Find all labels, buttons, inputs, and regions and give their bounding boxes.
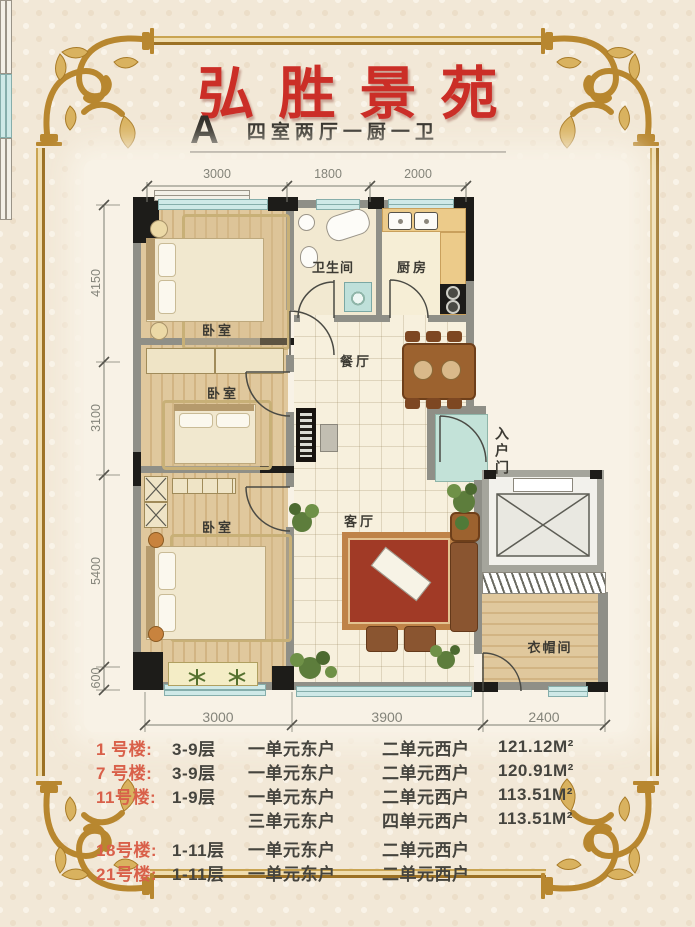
room-label-bedroom-middle: 卧室 <box>173 383 273 402</box>
dim-top-1: 3000 <box>187 167 247 181</box>
wall-segment <box>598 592 608 690</box>
wall-segment <box>286 412 294 487</box>
room-label-entry: 入户门 <box>492 418 512 484</box>
listing-row: 11号楼: 1-9层 一单元东户 二单元西户 113.51M² <box>96 783 621 807</box>
dim-left-1: 4150 <box>89 258 103 308</box>
unit-east: 三单元东户 <box>248 807 382 832</box>
dim-bottom-2: 3900 <box>357 709 417 725</box>
plate <box>441 360 461 380</box>
stove-burner <box>446 300 460 314</box>
kitchen-sink <box>414 212 438 230</box>
listing-row: 7 号楼: 3-9层 一单元东户 二单元西户 120.91M² <box>96 759 621 783</box>
floor-range: 1-9层 <box>172 783 248 808</box>
wall-column <box>474 682 498 692</box>
pillow <box>158 594 176 632</box>
room-label-dining: 餐厅 <box>318 351 394 370</box>
frame-line-left <box>36 148 45 776</box>
dim-left-2: 3100 <box>89 393 103 443</box>
pillow <box>179 413 213 428</box>
room-label-bedroom-top: 卧室 <box>168 320 268 339</box>
nightstand <box>148 626 164 642</box>
nightstand <box>150 322 168 340</box>
unit-area: 113.51M² <box>498 809 621 829</box>
flyer-canvas: 弘胜景苑 A 四室两厅一厨一卫 <box>0 0 695 927</box>
frame-line-right <box>650 148 659 776</box>
dining-chair <box>426 331 441 342</box>
kitchen-sink <box>388 212 412 230</box>
unit-west: 二单元西户 <box>382 735 498 760</box>
unit-east: 一单元东户 <box>248 836 382 861</box>
unit-subtitle: A 四室两厅一厨一卫 <box>190 112 506 153</box>
room-label-cloakroom: 衣帽间 <box>508 637 592 656</box>
armchair <box>366 626 398 652</box>
dining-chair <box>405 398 420 409</box>
room-label-kitchen: 厨房 <box>384 257 442 276</box>
wall-column <box>268 197 298 211</box>
stove-burner <box>446 286 460 300</box>
wall-column <box>133 652 163 690</box>
closet-box <box>144 502 168 528</box>
unit-west: 二单元西户 <box>382 836 498 861</box>
sink <box>298 214 315 231</box>
dim-bottom-3: 2400 <box>514 709 574 725</box>
listing-row: 18号楼: 1-11层 一单元东户 二单元西户 <box>96 836 621 860</box>
unit-west: 四单元西户 <box>382 807 498 832</box>
unit-area: 121.12M² <box>498 737 621 757</box>
wardrobe <box>146 348 284 374</box>
wall-segment <box>428 315 474 322</box>
nightstand <box>148 532 164 548</box>
shelf <box>172 478 236 494</box>
balcony-planter <box>168 662 258 686</box>
wall-segment <box>286 355 294 372</box>
bed-headboard <box>174 404 254 411</box>
building-number: 7 号楼: <box>96 759 172 784</box>
room-label-bathroom: 卫生间 <box>294 257 372 276</box>
wall-column <box>272 666 294 690</box>
floor-range: 3-9层 <box>172 735 248 760</box>
dim-left-4: 600 <box>89 653 103 703</box>
wall-segment <box>133 200 141 690</box>
wall-segment <box>294 315 300 322</box>
unit-area: 120.91M² <box>498 761 621 781</box>
room-label-bedroom-bottom: 卧室 <box>168 517 268 536</box>
unit-west: 二单元西户 <box>382 759 498 784</box>
window <box>548 686 588 697</box>
dining-chair <box>405 331 420 342</box>
building-number: 18号楼: <box>96 836 172 861</box>
dining-chair <box>426 398 441 409</box>
unit-east: 一单元东户 <box>248 759 382 784</box>
building-number: 21号楼: <box>96 860 172 885</box>
unit-west: 二单元西户 <box>382 783 498 808</box>
closet-box <box>144 476 168 502</box>
hatched-wall <box>482 572 606 594</box>
wall-column <box>590 470 602 479</box>
stove <box>440 284 466 314</box>
bed-headboard <box>146 238 155 320</box>
armchair <box>404 626 436 652</box>
window <box>0 138 12 220</box>
floor-range: 3-9层 <box>172 759 248 784</box>
wall-column <box>586 682 608 692</box>
building-listings: 1 号楼: 3-9层 一单元东户 二单元西户 121.12M² 7 号楼: 3-… <box>96 735 621 884</box>
wall-segment <box>427 414 435 480</box>
pillow <box>158 552 176 590</box>
pillow <box>158 243 176 277</box>
dim-left-3: 5400 <box>89 546 103 596</box>
wall-segment <box>334 315 382 322</box>
nightstand <box>150 220 168 238</box>
unit-east: 一单元东户 <box>248 735 382 760</box>
window <box>158 199 268 210</box>
entry-landing <box>435 414 488 482</box>
washing-machine <box>344 282 372 312</box>
listing-row: 三单元东户 四单元西户 113.51M² <box>96 807 621 831</box>
pillow <box>158 280 176 314</box>
building-number: 11号楼: <box>96 783 172 808</box>
unit-east: 一单元东户 <box>248 783 382 808</box>
side-table <box>450 512 480 542</box>
unit-type-letter: A <box>190 112 219 148</box>
bench <box>320 424 338 452</box>
unit-area: 113.51M² <box>498 785 621 805</box>
dining-chair <box>447 398 462 409</box>
unit-east: 一单元东户 <box>248 860 382 885</box>
dim-bottom-1: 3000 <box>188 709 248 725</box>
unit-west: 二单元西户 <box>382 860 498 885</box>
room-label-living: 客厅 <box>326 511 394 530</box>
frame-line-top <box>150 36 546 45</box>
sofa <box>450 542 478 632</box>
dim-top-3: 2000 <box>388 167 448 181</box>
unit-layout-label: 四室两厅一厨一卫 <box>247 117 439 148</box>
bed-headboard <box>146 546 155 638</box>
window <box>296 686 472 697</box>
floor-range: 1-11层 <box>172 836 248 861</box>
building-number: 1 号楼: <box>96 735 172 760</box>
floor-range: 1-11层 <box>172 860 248 885</box>
console-table <box>296 408 316 462</box>
listing-row: 1 号楼: 3-9层 一单元东户 二单元西户 121.12M² <box>96 735 621 759</box>
pillow <box>216 413 250 428</box>
wall-segment <box>382 315 390 322</box>
listing-row: 21号楼: 1-11层 一单元东户 二单元西户 <box>96 860 621 884</box>
wall-column <box>133 452 141 486</box>
dim-top-2: 1800 <box>298 167 358 181</box>
console-slats <box>300 413 312 457</box>
dining-chair <box>447 331 462 342</box>
elevator-lintel <box>513 478 573 492</box>
plate <box>413 360 433 380</box>
